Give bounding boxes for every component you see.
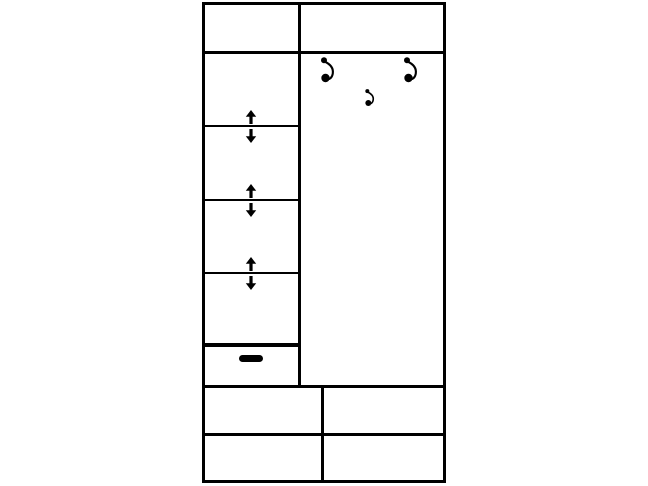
arrow-down-icon [245, 129, 257, 143]
arrow-down-icon [245, 276, 257, 290]
drawer-handle-bar [239, 355, 263, 362]
bottom-drawer-top-right [324, 388, 443, 433]
coat-hook-icon [402, 57, 420, 84]
furniture-schematic-diagram [0, 0, 648, 486]
header-cell-left [205, 5, 298, 51]
bottom-drawer-bottom-left [205, 436, 321, 480]
header-cell-right [301, 5, 443, 51]
coat-hook-icon [319, 57, 337, 84]
small-drawer [205, 347, 298, 385]
bottom-drawer-top-left [205, 388, 321, 433]
arrow-up-icon [245, 110, 257, 124]
arrow-down-icon [245, 203, 257, 217]
bottom-drawer-bottom-right [324, 436, 443, 480]
arrow-up-icon [245, 257, 257, 271]
coat-hook-small-icon [364, 89, 376, 107]
arrow-up-icon [245, 184, 257, 198]
